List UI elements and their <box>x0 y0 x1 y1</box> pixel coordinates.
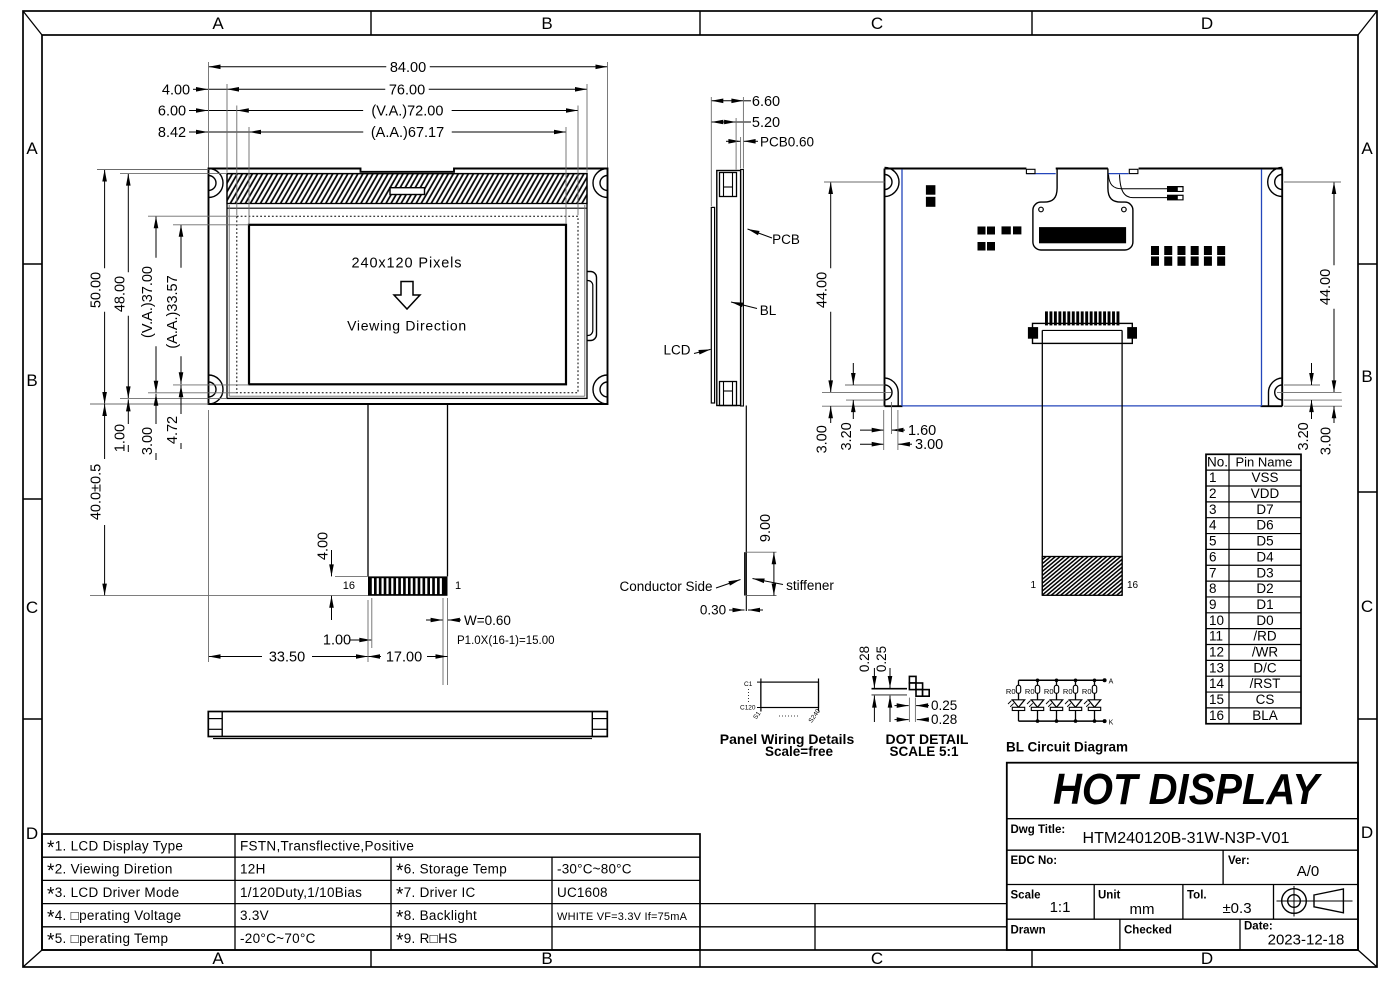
svg-text:48.00: 48.00 <box>112 276 128 312</box>
svg-text:1: 1 <box>1209 470 1217 485</box>
svg-text:PCB: PCB <box>772 232 800 247</box>
svg-text:Scale=free: Scale=free <box>765 744 833 759</box>
svg-text:C120: C120 <box>740 705 756 712</box>
svg-text:Conductor Side: Conductor Side <box>619 579 712 594</box>
svg-text:16: 16 <box>1209 708 1224 723</box>
svg-text:1: 1 <box>1030 580 1036 591</box>
svg-text:(V.A.)37.00: (V.A.)37.00 <box>140 266 156 338</box>
svg-text:9: 9 <box>1209 597 1217 612</box>
svg-text:VSS: VSS <box>1251 470 1278 485</box>
svg-text:C: C <box>1361 597 1373 616</box>
svg-text:Unit: Unit <box>1098 890 1121 902</box>
svg-text:B: B <box>541 14 552 33</box>
svg-text:4.72: 4.72 <box>165 416 181 444</box>
svg-text:(A.A.)67.17: (A.A.)67.17 <box>371 125 444 141</box>
svg-text:±0.3: ±0.3 <box>1222 900 1251 917</box>
svg-text:3.00: 3.00 <box>815 425 831 453</box>
svg-text:R0: R0 <box>1025 687 1035 696</box>
svg-text:No.: No. <box>1207 454 1228 469</box>
svg-text:0.30: 0.30 <box>700 603 726 618</box>
svg-text:HTM240120B-31W-N3P-V01: HTM240120B-31W-N3P-V01 <box>1083 830 1290 847</box>
svg-text:mm: mm <box>1130 901 1155 918</box>
svg-text:A: A <box>1109 679 1114 686</box>
svg-text:1:1: 1:1 <box>1050 899 1071 916</box>
svg-text:B: B <box>26 371 37 390</box>
svg-text:R0: R0 <box>1006 687 1016 696</box>
svg-text:3.00: 3.00 <box>140 427 156 455</box>
svg-text:UC1608: UC1608 <box>557 885 608 900</box>
svg-text:8.42: 8.42 <box>158 125 186 141</box>
svg-text:0.28: 0.28 <box>857 646 872 672</box>
svg-text:3.3V: 3.3V <box>240 908 269 923</box>
svg-text:stiffener: stiffener <box>786 578 834 593</box>
svg-text:D6: D6 <box>1256 518 1273 533</box>
svg-text:84.00: 84.00 <box>390 60 426 76</box>
svg-text:0.25: 0.25 <box>931 698 957 713</box>
svg-text:7: 7 <box>1209 565 1217 580</box>
svg-text:D: D <box>1201 14 1213 33</box>
svg-text:1.00: 1.00 <box>323 633 351 649</box>
svg-text:D5: D5 <box>1256 534 1273 549</box>
svg-text:Ver:: Ver: <box>1228 855 1250 867</box>
svg-text:BLA: BLA <box>1252 708 1278 723</box>
svg-text:SCALE 5:1: SCALE 5:1 <box>889 744 959 759</box>
svg-text:-20°C~70°C: -20°C~70°C <box>240 931 316 946</box>
svg-text:6: 6 <box>1209 549 1217 564</box>
svg-text:5.20: 5.20 <box>752 115 780 131</box>
svg-text:FSTN,Transflective,Positive: FSTN,Transflective,Positive <box>240 838 414 853</box>
svg-text:D2: D2 <box>1256 581 1273 596</box>
svg-text:4: 4 <box>1209 518 1217 533</box>
svg-text:D1: D1 <box>1256 597 1273 612</box>
svg-text:15: 15 <box>1209 692 1224 707</box>
svg-text:D7: D7 <box>1256 502 1273 517</box>
svg-text:A/0: A/0 <box>1297 863 1320 880</box>
svg-text:8: 8 <box>1209 581 1217 596</box>
svg-text:6.60: 6.60 <box>752 94 780 110</box>
svg-text:D3: D3 <box>1256 565 1273 580</box>
svg-text:3.00: 3.00 <box>915 437 943 453</box>
svg-text:13: 13 <box>1209 660 1224 675</box>
svg-text:1.00: 1.00 <box>112 424 128 452</box>
svg-text:5: 5 <box>1209 534 1217 549</box>
svg-text:6.00: 6.00 <box>158 104 186 120</box>
svg-text:12: 12 <box>1209 645 1224 660</box>
svg-text:C: C <box>871 949 883 968</box>
svg-text:10: 10 <box>1209 613 1224 628</box>
svg-text:/WR: /WR <box>1252 645 1278 660</box>
svg-text:11: 11 <box>1209 629 1223 644</box>
svg-text:B: B <box>541 949 552 968</box>
svg-text:76.00: 76.00 <box>389 82 425 98</box>
svg-text:A: A <box>212 949 224 968</box>
svg-text:(V.A.)72.00: (V.A.)72.00 <box>371 104 443 120</box>
svg-text:VDD: VDD <box>1251 486 1280 501</box>
svg-text:D/C: D/C <box>1253 660 1277 675</box>
svg-text:D4: D4 <box>1256 549 1274 564</box>
svg-text:240x120 Pixels: 240x120 Pixels <box>352 256 463 272</box>
svg-text:D: D <box>1201 949 1213 968</box>
svg-text:BL Circuit Diagram: BL Circuit Diagram <box>1006 740 1128 755</box>
svg-text:CS: CS <box>1256 692 1275 707</box>
svg-text:C: C <box>871 14 883 33</box>
svg-text:Viewing Direction: Viewing Direction <box>347 318 467 334</box>
svg-text:(A.A.)33.57: (A.A.)33.57 <box>165 275 181 348</box>
svg-text:D: D <box>26 824 38 843</box>
svg-text:Pin Name: Pin Name <box>1235 454 1292 469</box>
svg-text:0.25: 0.25 <box>874 646 889 672</box>
svg-text:A: A <box>26 139 38 158</box>
svg-text:17.00: 17.00 <box>386 650 422 666</box>
svg-text:B: B <box>1361 367 1372 386</box>
svg-text:16: 16 <box>343 580 355 592</box>
svg-text:-30°C~80°C: -30°C~80°C <box>557 862 632 877</box>
svg-text:16: 16 <box>1127 580 1139 591</box>
svg-text:50.00: 50.00 <box>89 272 105 308</box>
svg-text:HOT DISPLAY: HOT DISPLAY <box>1053 765 1322 814</box>
svg-text:2: 2 <box>1209 486 1217 501</box>
svg-text:3.20: 3.20 <box>1296 422 1312 450</box>
svg-text:4.00: 4.00 <box>162 82 190 98</box>
svg-text:/RST: /RST <box>1250 676 1281 691</box>
svg-text:/RD: /RD <box>1253 629 1277 644</box>
svg-text:Drawn: Drawn <box>1011 925 1046 937</box>
svg-text:PCB0.60: PCB0.60 <box>760 134 814 149</box>
svg-text:W=0.60: W=0.60 <box>464 613 511 628</box>
svg-text:9.00: 9.00 <box>758 514 774 542</box>
svg-text:44.00: 44.00 <box>815 272 831 308</box>
svg-text:Scale: Scale <box>1011 890 1041 902</box>
svg-text:3.20: 3.20 <box>839 422 855 450</box>
svg-text:40.0±0.5: 40.0±0.5 <box>89 464 105 520</box>
svg-text:Dwg Title:: Dwg Title: <box>1011 824 1066 836</box>
svg-text:Tol.: Tol. <box>1187 890 1207 902</box>
svg-text:R0: R0 <box>1082 687 1092 696</box>
svg-text:33.50: 33.50 <box>269 650 305 666</box>
svg-text:Checked: Checked <box>1124 925 1172 937</box>
svg-text:R0: R0 <box>1044 687 1054 696</box>
svg-text:44.00: 44.00 <box>1318 269 1334 305</box>
svg-text:EDC No:: EDC No: <box>1011 855 1058 867</box>
svg-text:K: K <box>1109 720 1114 727</box>
svg-text:1/120Duty,1/10Bias: 1/120Duty,1/10Bias <box>240 885 362 900</box>
svg-text:D0: D0 <box>1256 613 1273 628</box>
svg-text:R0: R0 <box>1063 687 1073 696</box>
svg-text:3.00: 3.00 <box>1319 427 1335 455</box>
svg-text:2023-12-18: 2023-12-18 <box>1268 932 1345 949</box>
svg-text:A: A <box>1361 139 1373 158</box>
svg-text:3: 3 <box>1209 502 1217 517</box>
svg-text:0.28: 0.28 <box>931 712 957 727</box>
svg-text:A: A <box>212 14 224 33</box>
svg-text:WHITE VF=3.3V If=75mA: WHITE VF=3.3V If=75mA <box>557 911 688 923</box>
svg-text:D: D <box>1361 823 1373 842</box>
svg-text:14: 14 <box>1209 676 1225 691</box>
svg-text:C: C <box>26 598 38 617</box>
svg-text:BL: BL <box>760 303 777 318</box>
svg-text:LCD: LCD <box>663 343 690 358</box>
svg-text:12H: 12H <box>240 862 266 877</box>
svg-text:P1.0X(16-1)=15.00: P1.0X(16-1)=15.00 <box>457 635 555 647</box>
svg-text:4.00: 4.00 <box>316 532 332 560</box>
svg-text:1: 1 <box>455 580 461 592</box>
svg-text:C1: C1 <box>744 681 753 688</box>
